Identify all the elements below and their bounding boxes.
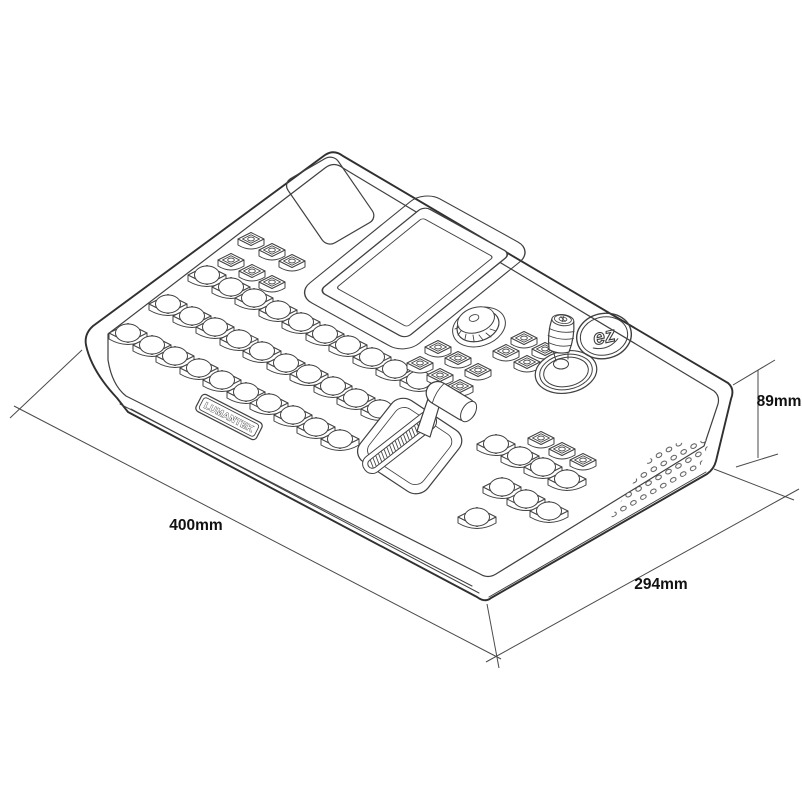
width-extension-line-left bbox=[10, 350, 82, 418]
isometric-console-drawing: LUMANTEK bbox=[0, 0, 802, 802]
width-dimension-label: 400mm bbox=[169, 517, 222, 534]
diagram-canvas: LUMANTEK bbox=[0, 0, 802, 802]
height-extension-line-bottom bbox=[736, 454, 778, 467]
depth-dimension-label: 294mm bbox=[634, 576, 687, 593]
depth-extension-line-right bbox=[714, 469, 794, 500]
height-extension-line-top bbox=[733, 360, 775, 385]
height-dimension-label: 89mm bbox=[757, 393, 802, 410]
dimension-height: 89mm bbox=[733, 360, 801, 467]
